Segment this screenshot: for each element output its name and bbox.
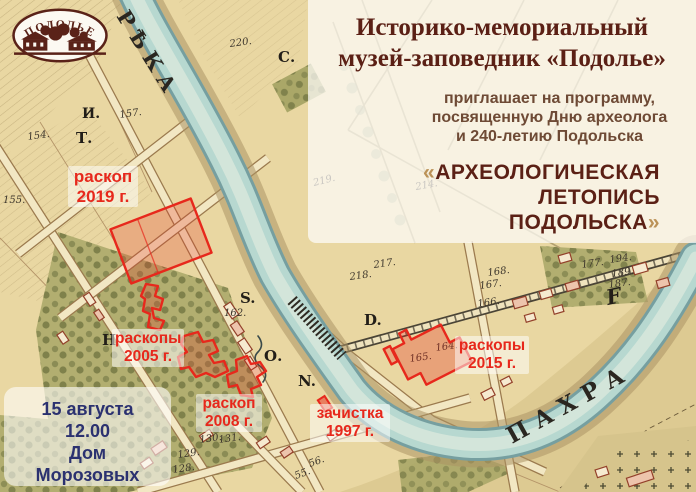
map-letters-item: S. [240,289,256,307]
label-excavation-2019: раскоп 2019 г. [68,166,138,207]
invitation-text: приглашает на программу, посвященную Дню… [403,89,696,146]
event-venue-line1: Дом [4,442,171,464]
label-excavation-2008: раскоп 2008 г. [196,394,262,432]
map-letters-item: N. [298,372,316,390]
map-letters-item: С. [278,48,295,66]
map-letters-item: О. [264,347,282,365]
map-numbers-item: 155. [3,195,25,206]
open-quote: « [423,161,435,184]
program-title: «АРХЕОЛОГИЧЕСКАЯ ЛЕТОПИСЬ ПОДОЛЬСКА» [423,160,660,235]
event-info: 15 августа 12.00 Дом Морозовых [4,387,171,486]
museum-logo: ПОДОЛЬЕ [11,8,109,66]
museum-title: Историко-мемориальный музей-заповедник «… [308,12,696,74]
header-panel: Историко-мемориальный музей-заповедник «… [308,0,696,243]
poster: РѢКА ПАХРА 220.157.154.155.162.219.214.2… [0,0,696,492]
event-time: 12.00 [4,420,171,442]
map-letters-item: Т. [76,129,92,147]
map-letters-item: И. [82,106,100,122]
label-excavations-2005: раскопы 2005 г. [112,329,184,367]
museum-title-line2: музей-заповедник «Подолье» [308,43,696,74]
event-date: 15 августа [4,398,171,420]
museum-title-line1: Историко-мемориальный [308,12,696,43]
close-quote: » [648,211,660,234]
label-excavations-2015: раскопы 2015 г. [455,336,529,374]
map-numbers-item: 162. [224,308,246,319]
label-cleanup-1997: зачистка 1997 г. [310,404,390,442]
event-venue-line2: Морозовых [4,464,171,486]
map-letters-item: D. [364,311,382,329]
